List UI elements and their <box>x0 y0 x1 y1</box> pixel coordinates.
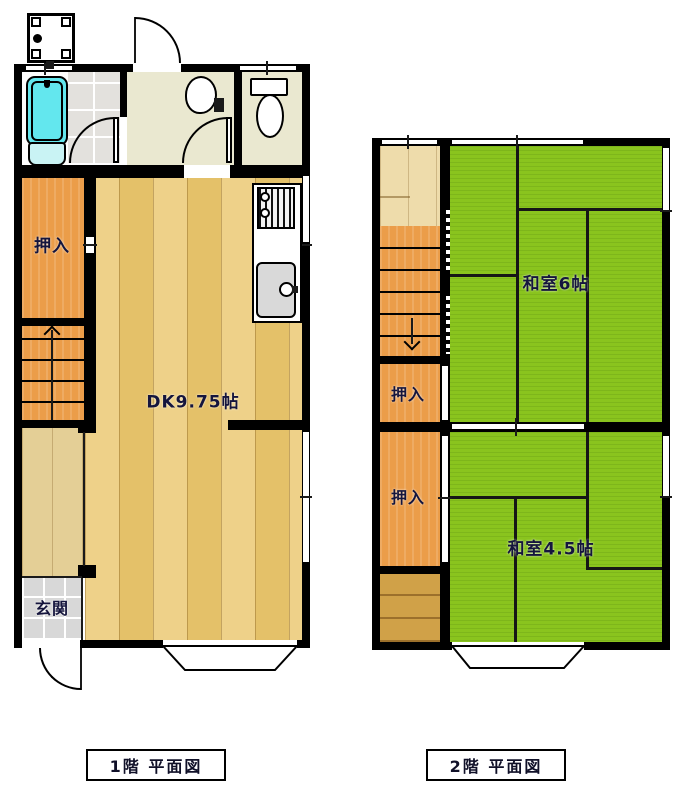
f2-stair-tread <box>380 247 440 249</box>
f2-stair-tread <box>380 291 440 293</box>
f2-fusuma-stair-lower <box>446 296 450 354</box>
f2-window-top-left-tick <box>407 135 409 149</box>
floor2-caption-box: 2階 平面図 <box>426 749 566 781</box>
f2-closet-lower-fusuma-tick <box>438 497 452 499</box>
f2-baywindow <box>449 644 587 672</box>
f2-room-divider-sliding-door <box>452 424 584 429</box>
landing-plank-line <box>380 196 410 198</box>
tatami-line <box>586 211 589 422</box>
tatami-line <box>450 496 588 499</box>
floor2-plan: 和室6帖 押入 押入 和室4.5帖 <box>0 0 682 740</box>
tatami-line <box>516 208 662 211</box>
f2-wall-under-stairs <box>372 356 450 364</box>
f2-wall-under-closet <box>372 566 450 574</box>
tatami-line <box>514 497 517 642</box>
floor1-caption-text: 1階 平面図 <box>110 753 203 777</box>
f2-window-top-right-tick <box>516 135 518 149</box>
room-label-washitsu6: 和室6帖 <box>523 270 590 295</box>
f2-fusuma-stair-upper <box>446 210 450 274</box>
f2-closet-upper-fusuma <box>442 366 448 420</box>
f2-room-divider-tick <box>515 418 517 436</box>
floor1-caption-box: 1階 平面図 <box>86 749 226 781</box>
tatami-line <box>443 274 518 277</box>
f2-stair-tread <box>380 269 440 271</box>
f2-window-right-upper <box>663 148 669 212</box>
tatami-line <box>516 146 519 422</box>
f2-closet-lower-fusuma <box>442 436 448 562</box>
room-label-closet2-lower: 押入 <box>391 484 425 508</box>
f2-stair-tread <box>380 313 440 315</box>
f2-window-top-left <box>382 140 437 144</box>
f2-window-right-lower-tick <box>660 496 672 498</box>
storage-darkwood-floor <box>380 574 442 642</box>
floorplan-canvas: 押入 DK9.75帖 玄関 <box>0 0 682 800</box>
landing-floor <box>380 146 440 226</box>
tatami-line <box>586 567 662 570</box>
f2-wall-right <box>662 138 670 650</box>
floor2-caption-text: 2階 平面図 <box>450 753 543 777</box>
f2-window-right-upper-tick <box>660 210 672 212</box>
f2-window-right-lower <box>663 436 669 498</box>
room-label-closet2-upper: 押入 <box>391 381 425 405</box>
room-label-washitsu45: 和室4.5帖 <box>507 535 594 560</box>
